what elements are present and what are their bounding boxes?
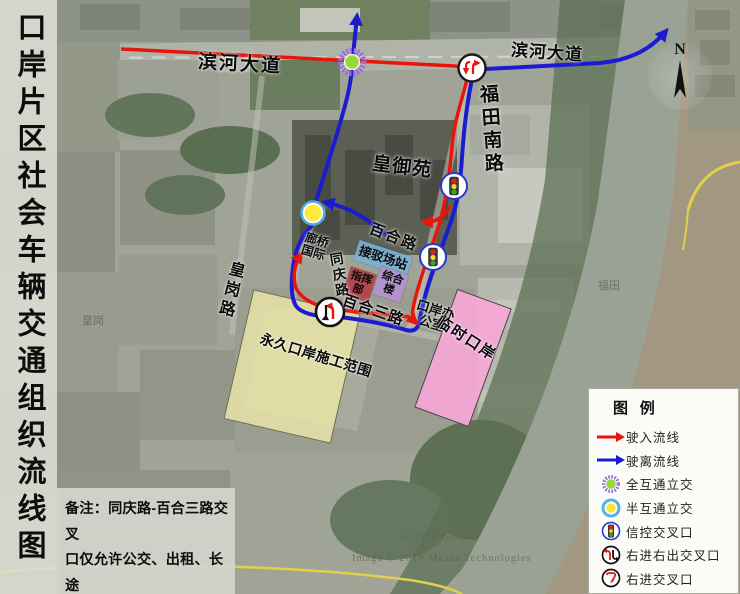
right-in-right-out-icon-binhe — [459, 55, 486, 82]
right-in-right-out-icon-tongqing — [316, 298, 344, 326]
legend-item-full-interchange: 全互通立交 — [589, 472, 738, 496]
exit-flow-arrow-icon — [596, 454, 626, 466]
road-label-binhe-west: 滨河大道 — [198, 53, 283, 78]
legend-item-right-in-right-out: 右进右出交叉口 — [589, 543, 738, 567]
legend-panel: 图 例 驶入流线 驶离流线 全互通立交 — [588, 388, 739, 594]
north-compass: N — [648, 40, 712, 110]
legend-item-exit-flow: 驶离流线 — [589, 449, 738, 473]
legend-item-signal-crossing: 信控交叉口 — [589, 519, 738, 543]
half-interchange-icon — [302, 202, 325, 225]
watermark-place-huanggang: 皇岗 — [82, 312, 104, 328]
note-line: 口仅允许公交、出租、长途 — [65, 548, 231, 594]
watermark-google: © 2018 Google — [402, 531, 477, 542]
entry-flow-baihe-branch — [424, 206, 450, 222]
watermark-place-futian: 福田 — [598, 277, 620, 293]
legend-item-half-interchange: 半互通立交 — [589, 496, 738, 520]
legend-item-right-in: 右进交叉口 — [589, 567, 738, 591]
map-title-bar: 口岸片区社会车辆交通组织流线图 — [0, 0, 57, 594]
right-in-right-out-legend-icon — [596, 544, 626, 566]
compass-north-label: N — [674, 42, 686, 58]
half-interchange-legend-icon — [596, 497, 626, 519]
note-box: 备注：同庆路-百合三路交叉 口仅允许公交、出租、长途 及指挥部工作人员车辆右转 … — [57, 488, 235, 594]
complex-building-label: 综合楼 — [376, 270, 404, 299]
signal-crossing-legend-icon — [596, 520, 626, 542]
exit-flow-north — [315, 16, 357, 204]
compass-needle-icon — [668, 58, 692, 102]
signal-crossing-icon-1 — [441, 173, 467, 199]
signal-crossing-icon-2 — [420, 244, 446, 270]
entry-flow-arrow-icon — [596, 431, 626, 443]
traffic-flow-map: 接驳场站 指挥部 综合楼 滨河大道 滨河大道 福田南路 皇御苑 百合路 同庆路 … — [0, 0, 740, 594]
legend-title: 图 例 — [613, 397, 738, 418]
map-title: 口岸片区社会车辆交通组织流线图 — [0, 12, 57, 594]
legend-item-entry-flow: 驶入流线 — [589, 425, 738, 449]
right-in-legend-icon — [596, 567, 626, 589]
note-line: 备注：同庆路-百合三路交叉 — [65, 497, 231, 548]
full-interchange-legend-icon — [596, 473, 626, 495]
watermark-imagery: Image © 2019 Maxar Technologies — [352, 553, 532, 564]
